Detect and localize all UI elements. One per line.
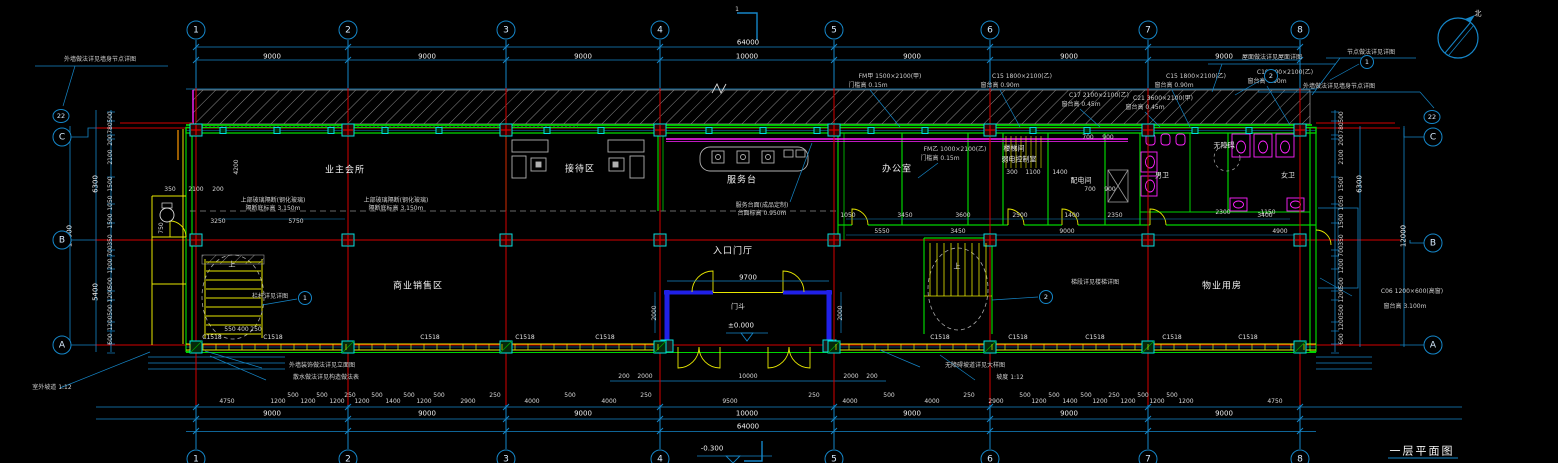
room-label: 业主会所: [325, 167, 365, 176]
dimension-text: 500: [564, 393, 575, 399]
grid-bubble: 7: [1139, 21, 1158, 40]
dimension-text: 1050: [1339, 195, 1345, 210]
dimension-text: 500: [108, 111, 114, 122]
dimension-text: 1050: [108, 195, 114, 210]
annotation-text: 外墙做法详见墙身节点详图: [64, 57, 136, 63]
annotation-text: C17 2100×2100(乙): [1069, 93, 1129, 99]
dimension-text: 500: [1019, 393, 1030, 399]
dimension-text: 1200: [1031, 399, 1046, 405]
dimension-text: 9000: [903, 411, 921, 418]
drawing-title: 一层平面图: [1390, 446, 1455, 457]
annotation-text: C06 1200×600(高窗): [1381, 289, 1443, 295]
annotation-text: 隔断底标高 3.150m: [246, 206, 301, 212]
dimension-text: 1500: [1339, 176, 1345, 191]
window-tag: C1518: [1008, 335, 1027, 341]
section-mark-top: [737, 13, 757, 40]
window-tag: C1518: [202, 335, 221, 341]
dimension-text: 9000: [903, 54, 921, 61]
window-tag: C1518: [515, 335, 534, 341]
annotation-text: 散水做法详见构造做法表: [293, 375, 359, 381]
dimension-text: 12000: [1401, 225, 1408, 247]
annotation-text: 台面标高 0.950m: [738, 211, 787, 217]
dimension-text: 9000: [418, 411, 436, 418]
dimension-text: 500: [287, 393, 298, 399]
annotation-text: 栏杆详见详图: [252, 294, 288, 300]
dimension-text: 500: [403, 393, 414, 399]
annotation-text: FM甲 1500×2100(甲): [859, 74, 922, 80]
grid-bubble: C: [1424, 128, 1443, 147]
dimension-text: 2100: [1339, 149, 1345, 164]
grid-bubble: 1: [187, 21, 206, 40]
dimension-text: 1200: [108, 287, 114, 302]
dimension-text: 4900: [1272, 229, 1287, 235]
dimension-text: 550: [224, 327, 235, 333]
west-steps: [60, 352, 285, 388]
dimension-text: 5750: [288, 219, 303, 225]
dimension-text: 1200: [108, 258, 114, 273]
dimension-text: 1400: [1062, 399, 1077, 405]
interior-partitions: [506, 133, 1316, 240]
window-tag: C1518: [595, 335, 614, 341]
dimension-text: 10000: [736, 54, 758, 61]
annotation-text: 梯段详见楼梯详图: [1071, 280, 1119, 286]
stair-direction: 上: [229, 262, 236, 269]
room-label: 男卫: [1155, 173, 1169, 180]
dimension-text: 2000: [652, 305, 658, 320]
dimension-text: 64000: [737, 40, 759, 47]
annotation-text: FM乙 1000×2100(乙): [924, 147, 987, 153]
dimension-text: 1100: [1025, 170, 1040, 176]
dimension-text: 700: [108, 245, 114, 256]
dimension-text: 300: [1006, 170, 1017, 176]
annotation-text: 上部玻璃隔断(钢化玻璃): [241, 198, 306, 204]
dimension-text: 3250: [210, 219, 225, 225]
dimension-text: 900: [1104, 187, 1115, 193]
dimension-text: 2500: [1012, 213, 1027, 219]
dimension-text: 350: [1339, 234, 1345, 245]
dimension-text: 2300: [1215, 210, 1230, 216]
annotation-text: 窗台高 3.100m: [1384, 304, 1427, 310]
dimension-text: 500: [1166, 393, 1177, 399]
dimension-text: 2900: [460, 399, 475, 405]
room-label: 物业用房: [1202, 283, 1242, 292]
room-label: 办公室: [882, 166, 912, 175]
accessible-wc-west: [152, 196, 186, 345]
window-tag: C1518: [420, 335, 439, 341]
annotation-text: 屋面做法详见屋面详图: [1242, 55, 1302, 61]
annotation-text: 窗台高 0.90m: [980, 83, 1019, 89]
dimension-text: 250: [250, 327, 261, 333]
window-tag: C1518: [1162, 335, 1181, 341]
grid-bubble: 1: [187, 450, 206, 463]
dimension-text: 4750: [1267, 399, 1282, 405]
dimension-text: 1200: [329, 399, 344, 405]
grid-bubble: 3: [497, 21, 516, 40]
dimension-text: 500: [1080, 393, 1091, 399]
dimension-text: 250: [640, 393, 651, 399]
detail-callout-bubble: 2: [1264, 69, 1278, 83]
dimension-text: 200: [618, 374, 629, 380]
grid-bubble: 2: [339, 450, 358, 463]
dimension-text: 5550: [874, 229, 889, 235]
grid-bubble: 2: [339, 21, 358, 40]
dimension-text: 250: [808, 393, 819, 399]
dimension-text: 4000: [842, 399, 857, 405]
dimension-text: 1150: [1260, 210, 1275, 216]
north-arrow: [1438, 15, 1478, 58]
dimension-text: 10000: [736, 411, 758, 418]
dimension-text: 600: [108, 333, 114, 344]
annotation-text: 窗台高 0.45m: [1061, 102, 1100, 108]
dimension-text: 4200: [234, 159, 240, 174]
wall-type-callout: 22: [53, 109, 70, 123]
dimension-text: 500: [1339, 304, 1345, 315]
dimension-text: 1200: [270, 399, 285, 405]
dimension-text: 9000: [1215, 54, 1233, 61]
dimension-text: 3450: [897, 213, 912, 219]
dimension-text: 1200: [1339, 287, 1345, 302]
dimension-text: 500: [1048, 393, 1059, 399]
dimension-text: 9000: [263, 54, 281, 61]
dimension-text: 9000: [1215, 411, 1233, 418]
dimension-text: 9500: [722, 399, 737, 405]
annotation-text: C21 3600×2100(甲): [1133, 96, 1193, 102]
dimension-text: 350: [108, 234, 114, 245]
grid-bubble: 6: [981, 21, 1000, 40]
dimension-text: 500: [1137, 393, 1148, 399]
dimension-text: 200: [212, 187, 223, 193]
dimension-text: 900: [1102, 135, 1113, 141]
level-marker: ±0.000: [728, 323, 754, 330]
detail-callout-bubble: 1: [1360, 55, 1374, 69]
room-label: 商业销售区: [393, 283, 443, 292]
dimension-text: 1400: [1064, 213, 1079, 219]
dimension-text: 2000: [838, 305, 844, 320]
dimension-text: 10000: [738, 374, 757, 380]
dimension-text: 1500: [1339, 213, 1345, 228]
dimension-text: 1200: [300, 399, 315, 405]
level-marker: -0.300: [701, 446, 724, 453]
dimension-text: 780: [108, 122, 114, 133]
dimension-text: 500: [371, 393, 382, 399]
grid-bubble: 5: [825, 450, 844, 463]
room-label: 接待区: [565, 166, 595, 175]
dimension-text: 1400: [1052, 170, 1067, 176]
grid-bubble: 4: [651, 21, 670, 40]
annotation-text: 窗台高 0.45m: [1125, 105, 1164, 111]
dimension-text: 1200: [416, 399, 431, 405]
dimension-text: 9000: [574, 411, 592, 418]
grid-bubble: A: [1424, 336, 1443, 355]
dimension-text: 500: [316, 393, 327, 399]
section-mark-label: 1: [735, 7, 739, 13]
grid-bubble: 8: [1291, 21, 1310, 40]
grid-bubble: A: [53, 336, 72, 355]
dimension-text: 1500: [108, 176, 114, 191]
grid-bubble: 7: [1139, 450, 1158, 463]
dimension-text: 1500: [108, 213, 114, 228]
dimension-text: 2000: [637, 374, 652, 380]
dimension-text: 1200: [1120, 399, 1135, 405]
window-tag: C1518: [263, 335, 282, 341]
detail-callout-bubble: 2: [1039, 290, 1053, 304]
dimension-text: 6300: [93, 175, 100, 193]
grid-bubble: 6: [981, 450, 1000, 463]
room-label: 入口门厅: [713, 248, 753, 257]
north-label: 北: [1475, 11, 1482, 18]
dimension-text: 200: [1339, 134, 1345, 145]
grid-bubble: 8: [1291, 450, 1310, 463]
annotation-text: 无障碍坡道详见大样图: [945, 363, 1005, 369]
room-label: 配电间: [1071, 178, 1092, 185]
room-label: 服务台: [727, 177, 757, 186]
annotation-text: C15 1800×2100(乙): [1166, 74, 1226, 80]
dimension-text: 1200: [1339, 315, 1345, 330]
dimension-text: 1200: [108, 315, 114, 330]
dimension-text: 9000: [1060, 411, 1078, 418]
dimension-text: 1400: [385, 399, 400, 405]
dimension-text: 250: [963, 393, 974, 399]
floor-plan-geometry: [0, 0, 1558, 463]
window-tag: C1518: [1085, 335, 1104, 341]
dimension-text: 500: [1339, 111, 1345, 122]
grid-bubble: 3: [497, 450, 516, 463]
dimension-text: 9000: [1060, 54, 1078, 61]
dimension-text: 500: [433, 393, 444, 399]
annotation-text: 门槛高 0.15m: [920, 156, 959, 162]
dimension-text: 350: [164, 187, 175, 193]
dimension-text: 600: [1339, 333, 1345, 344]
dimension-text: 200: [108, 134, 114, 145]
annotation-text: 服务台面(成品定制): [736, 203, 789, 209]
section-mark-bottom: [744, 441, 762, 461]
dimension-text: 1200: [1339, 258, 1345, 273]
dimension-text: 500: [108, 304, 114, 315]
detail-callout-bubble: 1: [298, 291, 312, 305]
dimension-text: 6300: [1357, 175, 1364, 193]
dimension-text: 2000: [843, 374, 858, 380]
dimension-text: 2900: [988, 399, 1003, 405]
dimension-text: 9000: [418, 54, 436, 61]
dimension-text: 4750: [219, 399, 234, 405]
dimension-text: 250: [489, 393, 500, 399]
dimension-text: 780: [1339, 122, 1345, 133]
dimension-text: 2100: [188, 187, 203, 193]
dimension-text: 4000: [601, 399, 616, 405]
dimension-text: 1050: [840, 213, 855, 219]
annotation-text: 上部玻璃隔断(钢化玻璃): [364, 198, 429, 204]
grid-bubble: B: [1424, 234, 1443, 253]
grid-bubble: 5: [825, 21, 844, 40]
cad-drawing-canvas[interactable]: 9000900090001000090009000900064000900090…: [0, 0, 1558, 463]
dimension-text: 3600: [955, 213, 970, 219]
dimension-text: 1200: [1092, 399, 1107, 405]
grid-bubble: 4: [651, 450, 670, 463]
dimension-text: 250: [1108, 393, 1119, 399]
annotation-text: C15 1800×2100(乙): [992, 74, 1052, 80]
grid-bubble: B: [53, 231, 72, 250]
annotation-text: 门槛高 0.15m: [848, 83, 887, 89]
annotation-text: 外墙装饰做法详见立面图: [289, 363, 355, 369]
dimension-text: 2350: [1107, 213, 1122, 219]
stair-direction: 上: [954, 264, 961, 271]
dimension-text: 200: [866, 374, 877, 380]
dimension-text: 9000: [1059, 229, 1074, 235]
dimension-text: 700: [1084, 187, 1095, 193]
annotation-text: 外墙做法详见墙身节点详图: [1303, 84, 1375, 90]
room-label: 门斗: [731, 304, 745, 311]
dimension-text: 4000: [924, 399, 939, 405]
dimension-text: 750: [159, 222, 165, 233]
annotation-text: 坡度 1:12: [996, 375, 1023, 381]
dimension-text: 1200: [1149, 399, 1164, 405]
dimension-text: 64000: [737, 424, 759, 431]
dimension-text: 500: [883, 393, 894, 399]
grid-bubble: C: [53, 128, 72, 147]
annotation-text: 隔断底标高 3.150m: [369, 206, 424, 212]
dimension-text: 3450: [950, 229, 965, 235]
dimension-text: 9700: [739, 275, 757, 282]
dimension-text: 5400: [93, 283, 100, 301]
dimension-text: 1200: [354, 399, 369, 405]
window-tag: C1518: [930, 335, 949, 341]
annotation-text: 节点做法详见详图: [1347, 50, 1395, 56]
room-label: 无障碍: [1214, 143, 1235, 150]
room-label: 楼梯间: [1004, 146, 1025, 153]
room-label: 弱电控制室: [1002, 157, 1037, 164]
dimension-text: 700: [1339, 245, 1345, 256]
dimension-text: 9000: [574, 54, 592, 61]
annotation-text: 室外坡道 1:12: [32, 385, 71, 391]
dimension-text: 1200: [1178, 399, 1193, 405]
dimension-text: 400: [237, 327, 248, 333]
dimension-text: 2100: [108, 149, 114, 164]
room-label: 女卫: [1281, 173, 1295, 180]
annotation-text: 窗台高 0.90m: [1154, 83, 1193, 89]
dimension-text: 700: [1082, 135, 1093, 141]
dimension-text: 4000: [524, 399, 539, 405]
window-tag: C1518: [1238, 335, 1257, 341]
wall-type-callout: 22: [1424, 110, 1441, 124]
dimension-text: 9000: [263, 411, 281, 418]
